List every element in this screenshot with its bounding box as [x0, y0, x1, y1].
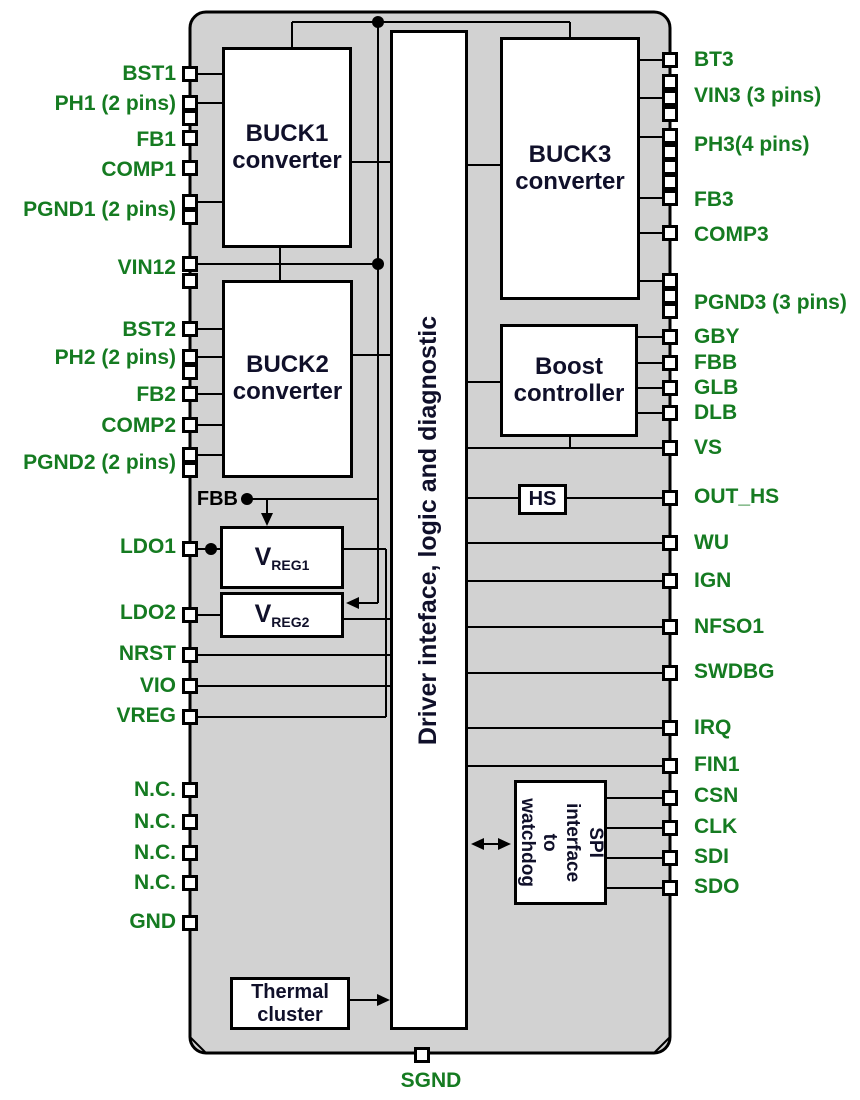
- pin-square: [182, 709, 198, 725]
- pin-square: [662, 273, 678, 289]
- block-label-vreg2: VREG2: [255, 600, 310, 630]
- pin-label-ph3-4-pins-: PH3(4 pins): [694, 133, 810, 157]
- pin-label-glb: GLB: [694, 376, 738, 400]
- pin-square: [662, 303, 678, 319]
- pin-square: [182, 160, 198, 176]
- pin-label-wu: WU: [694, 531, 729, 555]
- pin-square: [662, 405, 678, 421]
- pin-square: [182, 256, 198, 272]
- block-label-hs: HS: [529, 488, 557, 510]
- block-driver: Driver inteface, logic and diagnostic: [390, 30, 468, 1030]
- pin-square: [662, 720, 678, 736]
- pin-square: [182, 273, 198, 289]
- block-spi: SPI interfacetowatchdog: [514, 780, 607, 905]
- pin-label-fb3: FB3: [694, 188, 734, 212]
- pin-square: [662, 329, 678, 345]
- ic-block-diagram: BUCK1converterBUCK2converterBUCK3convert…: [0, 0, 860, 1100]
- pin-square: [182, 209, 198, 225]
- pin-square: [182, 417, 198, 433]
- junction-dot: [241, 493, 253, 505]
- block-buck3: BUCK3converter: [500, 37, 640, 300]
- pin-square: [182, 130, 198, 146]
- pin-square: [662, 355, 678, 371]
- block-hs: HS: [518, 484, 567, 515]
- pin-square: [182, 462, 198, 478]
- pin-square: [182, 541, 198, 557]
- pin-label-sdi: SDI: [694, 845, 729, 869]
- pin-label-out-hs: OUT_HS: [694, 485, 779, 509]
- block-label-spi: SPI interfacetowatchdog: [515, 798, 606, 887]
- pin-square: [182, 321, 198, 337]
- pin-square: [662, 880, 678, 896]
- pin-label-fb2: FB2: [136, 383, 176, 407]
- pin-square: [182, 875, 198, 891]
- pin-label-bst1: BST1: [122, 62, 176, 86]
- pin-label-vreg: VREG: [116, 704, 176, 728]
- pin-square: [414, 1047, 430, 1063]
- block-label-buck1: BUCK1converter: [232, 121, 341, 175]
- pin-label-swdbg: SWDBG: [694, 660, 775, 684]
- block-label-buck2: BUCK2converter: [233, 352, 342, 406]
- pin-label-fb1: FB1: [136, 128, 176, 152]
- pin-label-pgnd3-3-pins-: PGND3 (3 pins): [694, 291, 847, 315]
- block-buck1: BUCK1converter: [222, 47, 352, 248]
- pin-square: [662, 758, 678, 774]
- block-vreg1: VREG1: [220, 526, 344, 589]
- pin-label-ldo1: LDO1: [120, 535, 176, 559]
- block-label-buck3: BUCK3converter: [515, 142, 624, 196]
- pin-square: [182, 364, 198, 380]
- block-label-vreg1: VREG1: [255, 543, 310, 573]
- pin-label-n-c-: N.C.: [134, 810, 176, 834]
- pin-label-vs: VS: [694, 436, 722, 460]
- pin-label-irq: IRQ: [694, 716, 731, 740]
- pin-square: [182, 194, 198, 210]
- pin-label-csn: CSN: [694, 784, 738, 808]
- pin-square: [662, 190, 678, 206]
- pin-square: [662, 159, 678, 175]
- pin-square: [662, 144, 678, 160]
- junction-dot: [205, 543, 217, 555]
- pin-label-fbb: FBB: [694, 351, 737, 375]
- pin-label-sdo: SDO: [694, 875, 740, 899]
- pin-square: [182, 110, 198, 126]
- pin-label-bst2: BST2: [122, 318, 176, 342]
- pin-label-gnd: GND: [129, 910, 176, 934]
- pin-square: [662, 380, 678, 396]
- pin-square: [182, 95, 198, 111]
- pin-square: [662, 90, 678, 106]
- block-boost: Boostcontroller: [500, 324, 638, 437]
- pin-label-comp3: COMP3: [694, 223, 769, 247]
- pin-label-vio: VIO: [140, 674, 176, 698]
- pin-square: [662, 106, 678, 122]
- pin-square: [662, 790, 678, 806]
- pin-label-n-c-: N.C.: [134, 871, 176, 895]
- pin-label-nfso1: NFSO1: [694, 615, 764, 639]
- pin-label-bt3: BT3: [694, 48, 734, 72]
- pin-square: [182, 447, 198, 463]
- pin-square: [662, 440, 678, 456]
- block-vreg2: VREG2: [220, 592, 344, 638]
- pin-label-ldo2: LDO2: [120, 601, 176, 625]
- pin-label-n-c-: N.C.: [134, 841, 176, 865]
- pin-label-n-c-: N.C.: [134, 778, 176, 802]
- pin-square: [662, 619, 678, 635]
- pin-label-sgnd: SGND: [371, 1069, 491, 1093]
- pin-square: [182, 845, 198, 861]
- pin-label-comp2: COMP2: [101, 414, 176, 438]
- pin-label-dlb: DLB: [694, 401, 737, 425]
- pin-square: [182, 349, 198, 365]
- pin-square: [662, 52, 678, 68]
- pin-square: [662, 820, 678, 836]
- inner-label-fbb: FBB: [197, 488, 238, 510]
- pin-square: [182, 66, 198, 82]
- pin-square: [662, 490, 678, 506]
- block-label-thermal: Thermalcluster: [251, 981, 329, 1026]
- pin-square: [662, 535, 678, 551]
- pin-square: [182, 782, 198, 798]
- pin-square: [662, 573, 678, 589]
- block-thermal: Thermalcluster: [230, 977, 350, 1030]
- pin-label-ign: IGN: [694, 569, 731, 593]
- pin-square: [182, 647, 198, 663]
- pin-square: [662, 74, 678, 90]
- block-label-boost: Boostcontroller: [514, 354, 625, 408]
- pin-square: [662, 850, 678, 866]
- pin-square: [182, 915, 198, 931]
- junction-dot: [372, 258, 384, 270]
- pin-square: [662, 174, 678, 190]
- pin-label-ph1-2-pins-: PH1 (2 pins): [55, 92, 176, 116]
- pin-square: [662, 225, 678, 241]
- block-buck2: BUCK2converter: [222, 280, 353, 478]
- pin-square: [662, 665, 678, 681]
- pin-label-vin3-3-pins-: VIN3 (3 pins): [694, 84, 821, 108]
- pin-label-fin1: FIN1: [694, 753, 740, 777]
- pin-label-pgnd2-2-pins-: PGND2 (2 pins): [23, 451, 176, 475]
- pin-label-gby: GBY: [694, 325, 740, 349]
- pin-square: [182, 678, 198, 694]
- junction-dot: [372, 16, 384, 28]
- pin-label-vin12: VIN12: [118, 256, 176, 280]
- pin-square: [182, 814, 198, 830]
- block-label-driver: Driver inteface, logic and diagnostic: [415, 315, 444, 744]
- pin-label-ph2-2-pins-: PH2 (2 pins): [55, 346, 176, 370]
- pin-label-pgnd1-2-pins-: PGND1 (2 pins): [23, 198, 176, 222]
- pin-square: [182, 386, 198, 402]
- pin-label-clk: CLK: [694, 815, 737, 839]
- pin-label-comp1: COMP1: [101, 158, 176, 182]
- pin-square: [182, 607, 198, 623]
- pin-label-nrst: NRST: [119, 642, 176, 666]
- pin-square: [662, 128, 678, 144]
- pin-square: [662, 288, 678, 304]
